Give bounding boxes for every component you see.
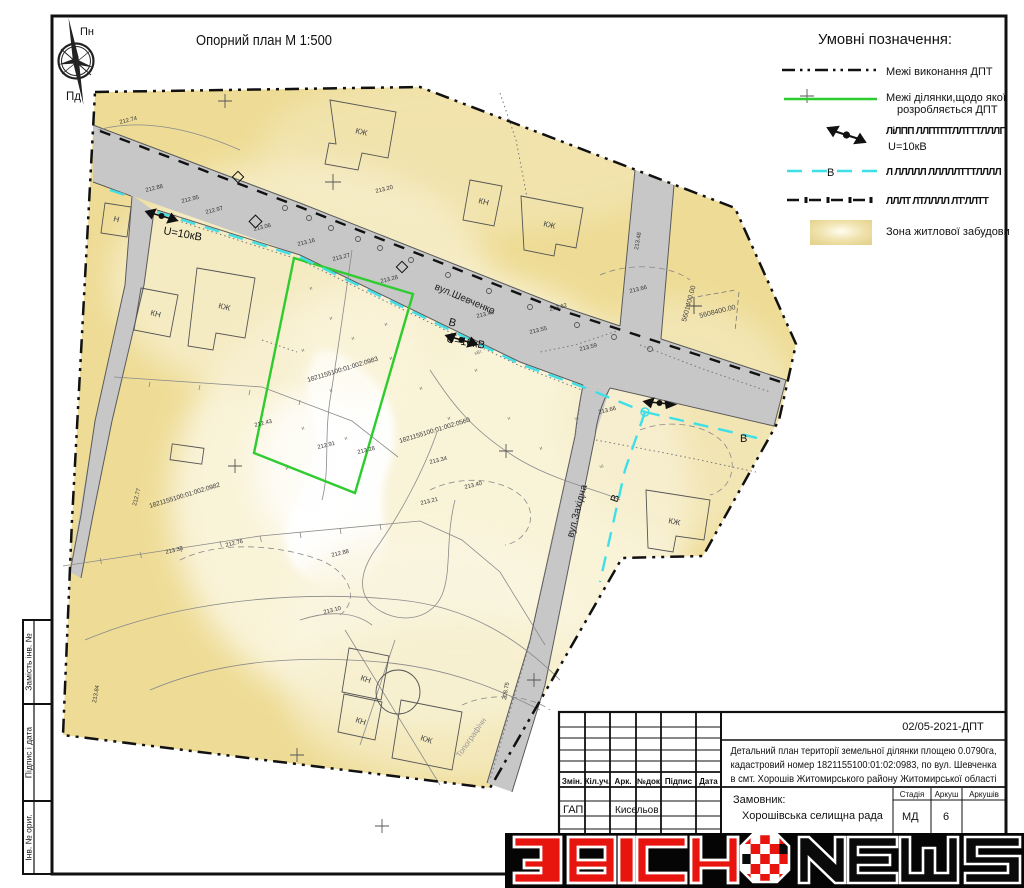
svg-text:ЛЛЛТ ЛТЛЛЛЛ ЛТ'ЛЛТТ: ЛЛЛТ ЛТЛЛЛЛ ЛТ'ЛЛТТ [886, 196, 989, 207]
svg-text:Стадія: Стадія [900, 790, 925, 799]
svg-text:Межі ділянки,щодо якої: Межі ділянки,щодо якої [886, 92, 1006, 104]
svg-text:в смт. Хорошів Житомирського: в смт. Хорошів Житомирського району Жито… [731, 773, 997, 785]
svg-text:Кіл.уч.: Кіл.уч. [585, 777, 611, 786]
svg-text:Змін.: Змін. [562, 777, 582, 786]
svg-text:Дата: Дата [699, 777, 718, 786]
svg-text:ГАП: ГАП [563, 804, 583, 816]
svg-text:Інв. № ориг.: Інв. № ориг. [24, 814, 34, 860]
svg-text:Л ЛЛЛЛЛ ЛЛЛЛЛТТТЛЛЛЛ: Л ЛЛЛЛЛ ЛЛЛЛЛТТТЛЛЛЛ [886, 167, 1002, 178]
svg-text:6: 6 [943, 811, 949, 823]
svg-text:кадастровий номер 1821155100:0: кадастровий номер 1821155100:01:02:0983,… [731, 759, 997, 771]
svg-text:Замовник:: Замовник: [733, 794, 785, 806]
svg-text:Аркушів: Аркушів [969, 790, 999, 799]
svg-text:Хорошівська селищна рада: Хорошівська селищна рада [742, 810, 884, 822]
svg-text:Аркуш: Аркуш [935, 790, 959, 799]
svg-text:№док: №док [637, 777, 661, 786]
svg-text:розробляється ДПТ: розробляється ДПТ [897, 104, 998, 116]
svg-text:Межі виконання ДПТ: Межі виконання ДПТ [886, 66, 993, 78]
svg-text:02/05-2021-ДПТ: 02/05-2021-ДПТ [902, 721, 984, 733]
svg-text:ЛіЛПП ЛЛПТПТЛЛТТТЛЛЛП: ЛіЛПП ЛЛПТПТЛЛТТТЛЛЛП [886, 126, 1007, 137]
svg-text:Підпис і дата: Підпис і дата [24, 727, 34, 778]
svg-text:Пн: Пн [80, 26, 94, 38]
svg-text:Підпис: Підпис [665, 777, 693, 786]
svg-text:Арк.: Арк. [615, 777, 632, 786]
svg-text:Умовні позначення:: Умовні позначення: [818, 31, 952, 48]
svg-text:Пд: Пд [66, 91, 81, 103]
svg-text:Кисельов: Кисельов [615, 805, 659, 816]
svg-text:Замість інв. №: Замість інв. № [24, 633, 34, 690]
svg-text:В: В [740, 433, 747, 445]
svg-text:МД: МД [902, 811, 919, 823]
svg-text:Опорний план М 1:500: Опорний план М 1:500 [196, 33, 332, 49]
svg-text:Зона житлової забудови: Зона житлової забудови [886, 226, 1010, 238]
svg-text:Детальний план території земел: Детальний план території земельної ділян… [731, 745, 997, 757]
svg-text:U=10кВ: U=10кВ [888, 141, 927, 153]
svg-text:В: В [827, 167, 834, 179]
